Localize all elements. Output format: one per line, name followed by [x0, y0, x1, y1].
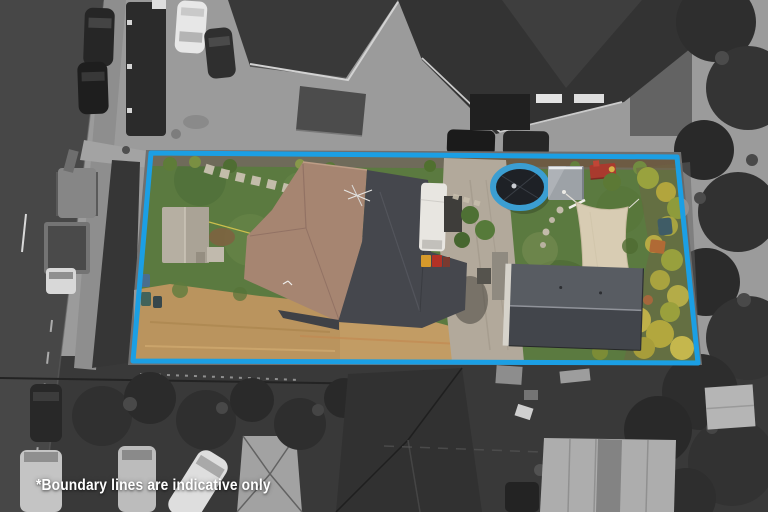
small-shed [548, 166, 584, 200]
small-roof [705, 384, 756, 429]
property [128, 150, 702, 365]
neighbour-house-bottom [336, 368, 482, 512]
white-car [174, 0, 208, 54]
dark-car [203, 27, 236, 80]
dark-car [83, 7, 115, 66]
outbuilding [503, 264, 644, 351]
suv [30, 384, 62, 442]
long-shed-roof [540, 438, 676, 512]
aerial-photo: *Boundary lines are indicative only [0, 0, 768, 512]
boundary-disclaimer-text: *Boundary lines are indicative only [36, 477, 271, 495]
dark-car [77, 61, 109, 114]
white-caravan [419, 183, 447, 252]
